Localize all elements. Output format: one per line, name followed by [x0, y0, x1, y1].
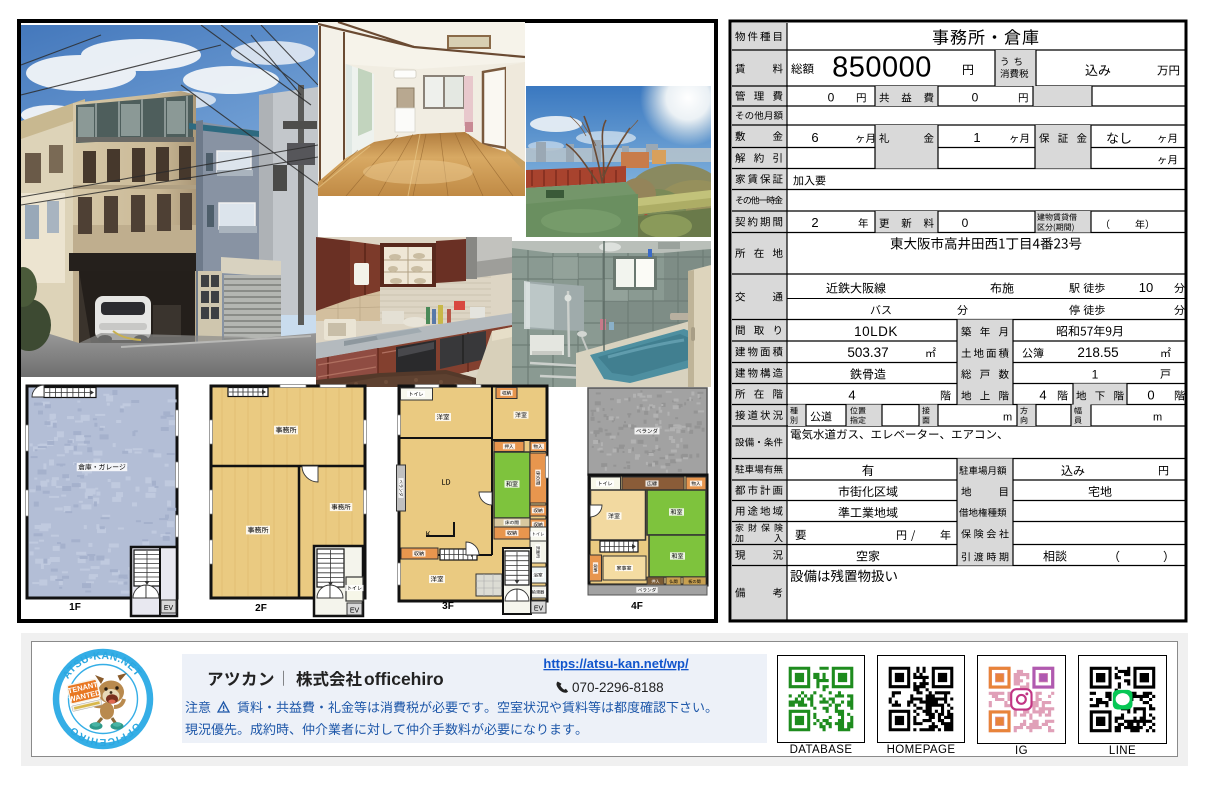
- svg-text:https://atsu-kan.net/wp/: https://atsu-kan.net/wp/: [543, 656, 689, 671]
- svg-text:070-2296-8188: 070-2296-8188: [572, 680, 664, 695]
- svg-text:officehiro: officehiro: [364, 669, 444, 689]
